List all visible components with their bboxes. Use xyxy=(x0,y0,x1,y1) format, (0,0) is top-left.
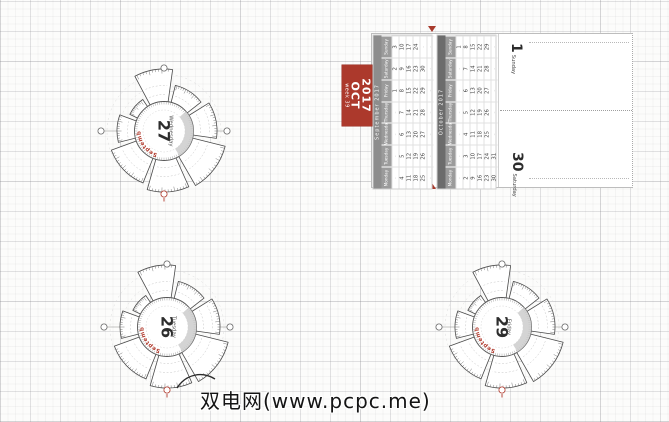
date-cell: 6 xyxy=(462,79,469,101)
fan-day-name: Wednesday xyxy=(168,115,174,147)
day-name-cell: Sunday xyxy=(445,35,455,57)
date-cell: – xyxy=(391,122,398,144)
date-cell: 24 xyxy=(412,35,419,57)
day-name-cell: Saturday xyxy=(445,57,455,79)
date-cell: 7 xyxy=(462,57,469,79)
date-cell: 1 xyxy=(455,35,462,57)
date-cell: – xyxy=(426,57,433,79)
date-cell: 26 xyxy=(419,144,426,166)
date-cell: 5 xyxy=(462,101,469,123)
date-cell: 2 xyxy=(391,57,398,79)
date-cell: 27 xyxy=(483,79,490,101)
date-cell: 15 xyxy=(405,79,412,101)
date-cell: 10 xyxy=(398,35,405,57)
week-row: 45678910 xyxy=(398,35,405,188)
date-cell: 26 xyxy=(483,101,490,123)
date-cell: 9 xyxy=(469,166,476,188)
date-cell: – xyxy=(490,122,497,144)
date-cell: – xyxy=(391,101,398,123)
date-cell: 30 xyxy=(490,166,497,188)
date-cell: – xyxy=(426,122,433,144)
fan-day-name: Tuesday xyxy=(171,315,177,339)
date-cell: – xyxy=(455,166,462,188)
day-name-cell: Saturday xyxy=(381,57,391,79)
perforation-dots-top xyxy=(529,42,629,43)
date-cell: 16 xyxy=(476,166,483,188)
week-badge: 2017 OCT week 39 xyxy=(341,64,372,126)
week-row: 16171819202122 xyxy=(476,35,483,188)
date-cell: – xyxy=(426,166,433,188)
week-row: 11121314151617 xyxy=(405,35,412,188)
month-title-bar: October 2017 xyxy=(437,35,445,188)
day-page-label-saturday: 30Saturday xyxy=(502,152,528,186)
date-cell: – xyxy=(455,122,462,144)
date-cell: 13 xyxy=(405,122,412,144)
day-names-row: MondayTuesdayWednesdayThursdayFridaySatu… xyxy=(445,35,455,188)
day-pages-divider xyxy=(500,110,632,111)
date-cell: – xyxy=(455,57,462,79)
date-cell: 15 xyxy=(469,35,476,57)
sheet-fold-line xyxy=(498,34,499,187)
month-calendar: September 2017MondayTuesdayWednesdayThur… xyxy=(372,34,432,189)
day-fan-wheel-26: September26Tuesday xyxy=(92,252,242,402)
day-name-cell: Wednesday xyxy=(445,122,455,144)
day-name-cell: Tuesday xyxy=(445,144,455,166)
planner-sheet: 1Sunday 30Saturday September 2017MondayT… xyxy=(371,33,633,188)
day-page-label-sunday: 1Sunday xyxy=(503,43,527,79)
day-name-cell: Monday xyxy=(381,166,391,188)
date-cell: 2 xyxy=(462,166,469,188)
date-cell: 25 xyxy=(483,122,490,144)
date-cell: 10 xyxy=(469,144,476,166)
month-title-bar: September 2017 xyxy=(373,35,381,188)
day-page-dayname: Saturday xyxy=(511,173,517,196)
day-name-cell: Friday xyxy=(445,79,455,101)
week-row: 9101112131415 xyxy=(469,35,476,188)
date-cell: 21 xyxy=(412,101,419,123)
date-cell: 12 xyxy=(469,101,476,123)
month-calendar: October 2017MondayTuesdayWednesdayThursd… xyxy=(436,34,496,189)
date-cell: 19 xyxy=(476,101,483,123)
date-cell: 23 xyxy=(483,166,490,188)
day-fan-wheel-29: September29Friday xyxy=(427,252,577,402)
date-cell: 1 xyxy=(391,79,398,101)
date-cell: – xyxy=(391,166,398,188)
day-name-cell: Thursday xyxy=(445,101,455,123)
date-cell: – xyxy=(426,144,433,166)
week-row: ––––––– xyxy=(426,35,433,188)
date-cell: 23 xyxy=(412,57,419,79)
day-name-cell: Friday xyxy=(381,79,391,101)
week-row: ––––123 xyxy=(391,35,398,188)
date-cell: 3 xyxy=(391,35,398,57)
date-cell: 11 xyxy=(469,122,476,144)
day-name-cell: Thursday xyxy=(381,101,391,123)
date-cell: 28 xyxy=(483,57,490,79)
fan-day-name: Friday xyxy=(506,319,512,336)
fan-wheel-graphic: September27Wednesday xyxy=(89,56,239,206)
day-name-cell: Wednesday xyxy=(381,122,391,144)
date-cell: 4 xyxy=(462,122,469,144)
fold-marker-top-icon xyxy=(428,26,436,32)
date-cell: 21 xyxy=(476,57,483,79)
date-cell: – xyxy=(490,35,497,57)
date-cell: 29 xyxy=(419,79,426,101)
badge-week-number: week 39 xyxy=(342,64,349,126)
date-cell: 20 xyxy=(412,122,419,144)
calendar-craft-template-page: September27Wednesday September26Tuesday … xyxy=(0,0,669,422)
day-name-cell: Tuesday xyxy=(381,144,391,166)
watermark-text: 双电网(www.pcpc.me) xyxy=(200,385,431,414)
date-cell: 8 xyxy=(462,35,469,57)
date-cell: 14 xyxy=(405,101,412,123)
date-cell: 25 xyxy=(419,166,426,188)
date-cell: 12 xyxy=(405,144,412,166)
date-cell: 5 xyxy=(398,144,405,166)
date-cell: 30 xyxy=(419,57,426,79)
day-page-number: 30 xyxy=(509,152,525,171)
date-cell: 13 xyxy=(469,79,476,101)
week-row: 252627282930– xyxy=(419,35,426,188)
date-cell: – xyxy=(455,79,462,101)
week-row: 23242526272829 xyxy=(483,35,490,188)
date-cell: – xyxy=(426,35,433,57)
date-cell: – xyxy=(490,101,497,123)
badge-month: OCT xyxy=(349,64,360,126)
date-cell: – xyxy=(391,144,398,166)
badge-year: 2017 xyxy=(360,64,371,126)
date-cell: 6 xyxy=(398,122,405,144)
perforation-dots-bottom xyxy=(529,178,629,179)
date-cell: 28 xyxy=(419,101,426,123)
date-cell: 18 xyxy=(412,166,419,188)
date-cell: – xyxy=(426,101,433,123)
date-cell: 17 xyxy=(476,144,483,166)
date-cell: 4 xyxy=(398,166,405,188)
week-row: 3031––––– xyxy=(490,35,497,188)
date-cell: – xyxy=(426,79,433,101)
date-cell: 16 xyxy=(405,57,412,79)
date-cell: 29 xyxy=(483,35,490,57)
week-row: ––––––1 xyxy=(455,35,462,188)
day-page-dayname: Sunday xyxy=(510,55,516,74)
day-names-row: MondayTuesdayWednesdayThursdayFridaySatu… xyxy=(381,35,391,188)
day-fan-wheel-27: September27Wednesday xyxy=(89,56,239,206)
date-cell: – xyxy=(455,144,462,166)
date-cell: 19 xyxy=(412,144,419,166)
date-cell: – xyxy=(490,57,497,79)
date-cell: 31 xyxy=(490,144,497,166)
date-cell: 18 xyxy=(476,122,483,144)
date-cell: – xyxy=(490,79,497,101)
date-cell: 11 xyxy=(405,166,412,188)
fan-wheel-graphic: September29Friday xyxy=(427,252,577,402)
week-row: 18192021222324 xyxy=(412,35,419,188)
date-cell: – xyxy=(419,35,426,57)
fan-wheel-graphic: September26Tuesday xyxy=(92,252,242,402)
date-cell: 3 xyxy=(462,144,469,166)
date-cell: 8 xyxy=(398,79,405,101)
date-cell: 9 xyxy=(398,57,405,79)
date-cell: – xyxy=(455,101,462,123)
date-cell: 22 xyxy=(476,35,483,57)
date-cell: 27 xyxy=(419,122,426,144)
date-cell: 17 xyxy=(405,35,412,57)
date-cell: 24 xyxy=(483,144,490,166)
day-page-number: 1 xyxy=(508,43,524,53)
date-cell: 22 xyxy=(412,79,419,101)
week-row: 2345678 xyxy=(462,35,469,188)
date-cell: 20 xyxy=(476,79,483,101)
date-cell: 14 xyxy=(469,57,476,79)
day-name-cell: Monday xyxy=(445,166,455,188)
date-cell: 7 xyxy=(398,101,405,123)
day-name-cell: Sunday xyxy=(381,35,391,57)
